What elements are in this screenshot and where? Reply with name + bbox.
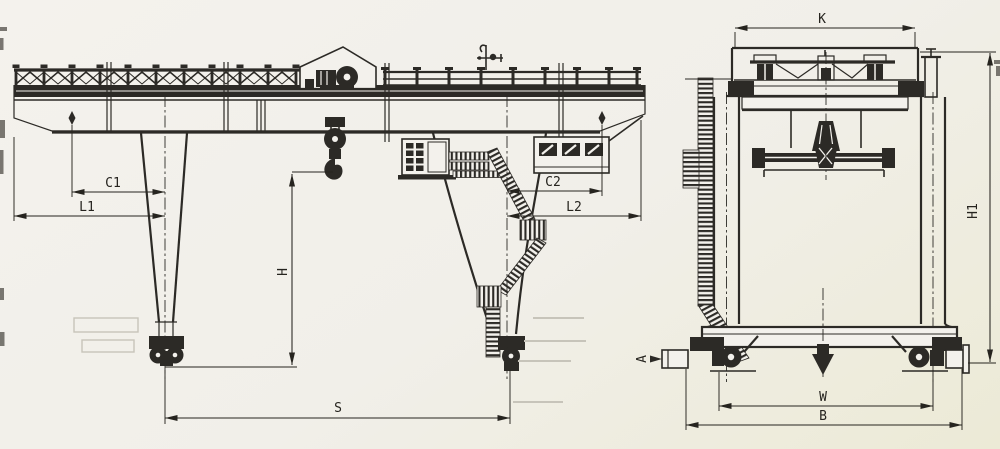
dimension-h1-label: H1 bbox=[966, 203, 981, 219]
wheel-bogie-front-right bbox=[498, 336, 525, 371]
dimension-h1: H1 bbox=[920, 52, 996, 363]
dimension-s: S bbox=[165, 370, 510, 424]
trolley bbox=[750, 50, 895, 80]
operator-cabin bbox=[534, 116, 643, 173]
dimension-k-label: K bbox=[818, 12, 826, 27]
dimension-c1-label: C1 bbox=[105, 176, 121, 191]
buffer-right bbox=[946, 345, 969, 373]
dimension-a: A bbox=[635, 355, 662, 363]
machinery-house bbox=[299, 47, 377, 89]
dimension-b-label: B bbox=[819, 409, 827, 424]
anemometer-mast bbox=[477, 45, 503, 70]
front-elevation-view: C1 L1 H S C2 L2 bbox=[13, 45, 646, 424]
dimension-c1: C1 bbox=[69, 111, 166, 197]
drawing-sheet: C1 L1 H S C2 L2 bbox=[0, 0, 1000, 449]
sill-beam bbox=[702, 327, 957, 347]
dimension-s-label: S bbox=[334, 401, 342, 416]
gantry-crane-drawing: C1 L1 H S C2 L2 bbox=[0, 0, 1000, 449]
dimension-k: K bbox=[735, 12, 915, 47]
handrail bbox=[381, 67, 641, 86]
cabin-strut bbox=[609, 116, 643, 141]
dimension-h-label: H bbox=[276, 268, 291, 276]
dimension-w-label: W bbox=[819, 390, 827, 405]
right-leg bbox=[398, 95, 546, 380]
side-elevation-view: K H1 A W B bbox=[635, 12, 996, 430]
stairway bbox=[449, 148, 546, 357]
dimension-c2-label: C2 bbox=[545, 175, 561, 190]
dimension-a-label: A bbox=[635, 355, 650, 363]
dimension-l1-label: L1 bbox=[79, 200, 95, 215]
truss-parapet bbox=[13, 65, 301, 87]
dimension-w: W bbox=[719, 370, 933, 411]
dimension-h: H bbox=[165, 172, 333, 367]
equipment-box bbox=[398, 139, 456, 180]
dimension-l2-label: L2 bbox=[566, 200, 582, 215]
hook-block bbox=[324, 117, 346, 180]
buffer-left bbox=[662, 350, 688, 368]
left-leg bbox=[141, 95, 187, 380]
wheel-bogie-front-left bbox=[149, 336, 184, 366]
